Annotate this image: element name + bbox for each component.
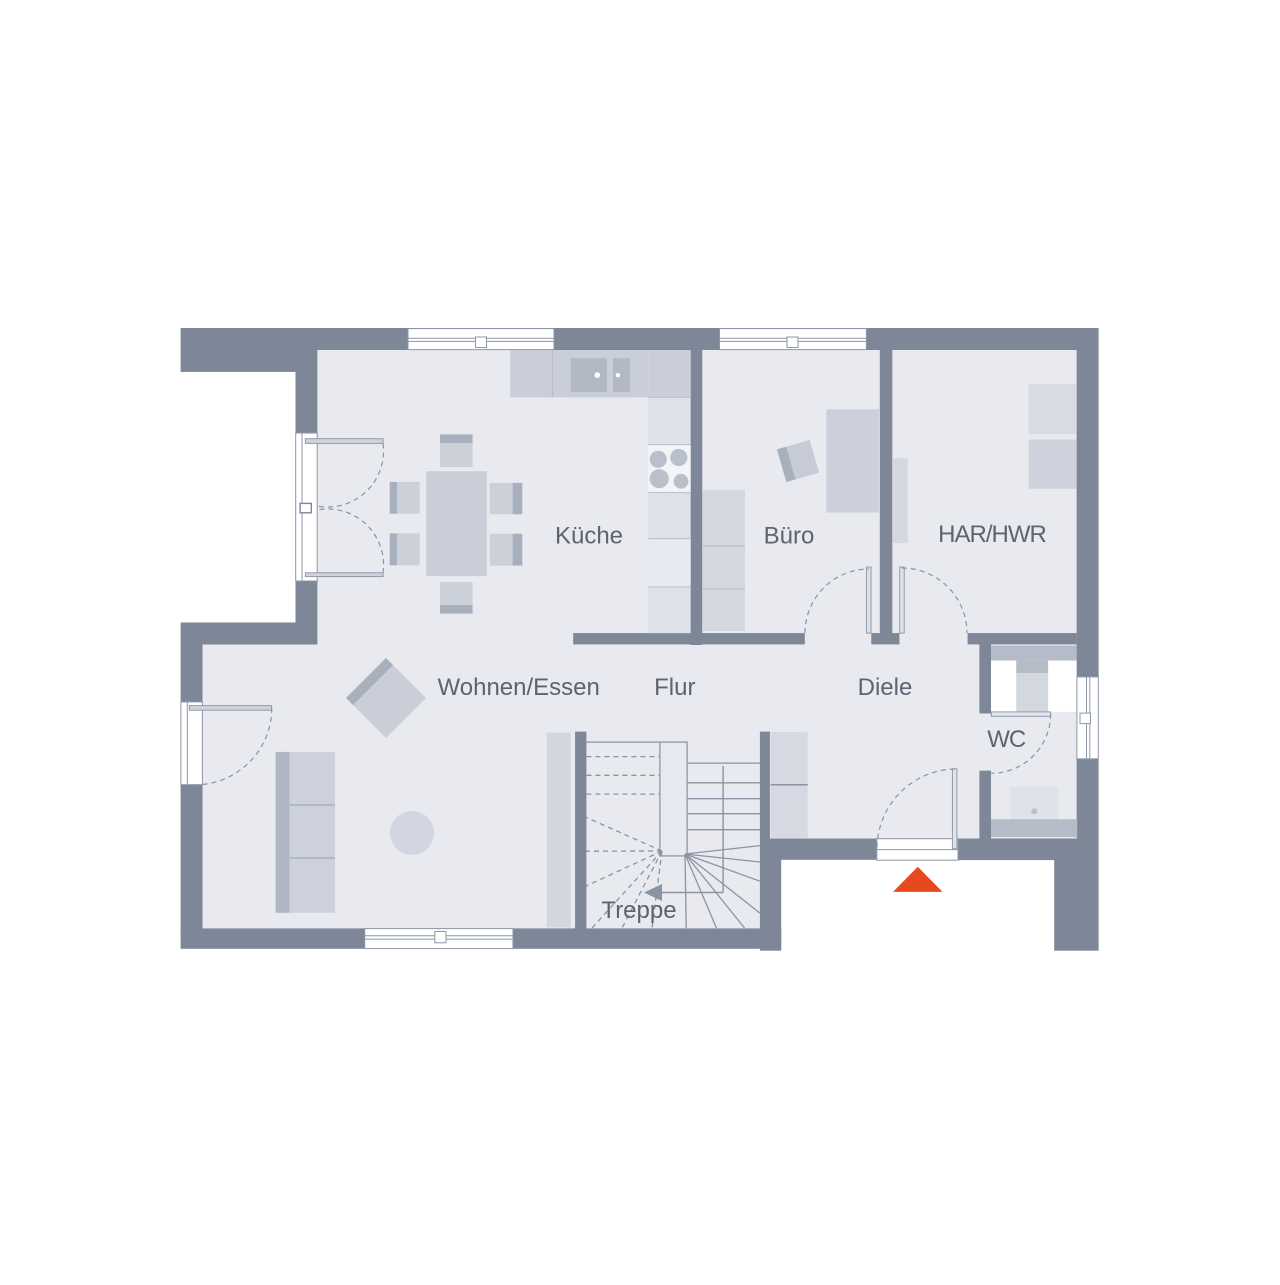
svg-text:Flur: Flur — [654, 674, 695, 701]
svg-text:WC: WC — [987, 726, 1026, 753]
svg-text:Wohnen/Essen: Wohnen/Essen — [438, 674, 600, 701]
svg-text:Küche: Küche — [555, 523, 623, 550]
svg-text:Treppe: Treppe — [601, 897, 676, 924]
svg-text:Diele: Diele — [858, 674, 913, 701]
svg-text:Büro: Büro — [764, 523, 815, 550]
svg-text:HAR/HWR: HAR/HWR — [938, 521, 1046, 548]
